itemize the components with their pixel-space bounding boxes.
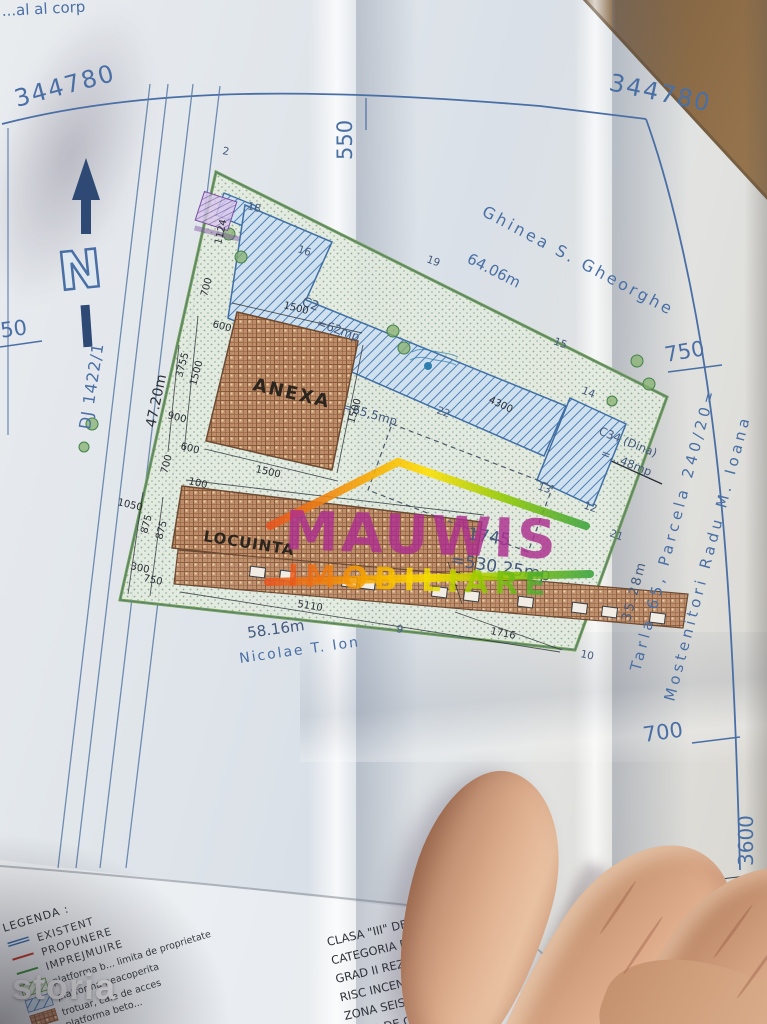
grid-left-margin: 750 xyxy=(0,315,29,344)
grid-scale-top: 550 xyxy=(333,120,357,160)
neighbor-north-length: 64.06m xyxy=(464,250,523,292)
point-9: 9 xyxy=(395,623,404,636)
neighbor-south-length: 58.16m xyxy=(246,616,306,642)
legend-existing-line xyxy=(8,937,29,943)
grid-right-vertical: 3600 xyxy=(734,815,758,866)
grid-coord-top-right: 344780 xyxy=(607,68,714,117)
corner-note: ...al al corp xyxy=(1,0,85,20)
legend-proposal-line xyxy=(12,953,33,959)
photo-of-site-plan: N ...al al corp 344780 344780 550 750 75… xyxy=(0,0,767,1024)
grid-right-margin: 750 xyxy=(663,336,707,367)
north-letter: N xyxy=(55,239,105,303)
road-name: DJ 1422/1 xyxy=(75,341,107,430)
grid-bottom-margin: 700 xyxy=(641,718,684,747)
legend-existing-line2 xyxy=(8,940,29,946)
storia-logo: storia xyxy=(12,966,116,1008)
water-symbol xyxy=(424,362,432,370)
dim-1050: 1050 xyxy=(116,497,143,513)
point-2: 2 xyxy=(221,145,230,158)
point-10: 10 xyxy=(579,648,595,663)
point-19: 19 xyxy=(425,254,442,270)
neighbor-north: Ghinea S. Gheorghe xyxy=(479,202,678,320)
